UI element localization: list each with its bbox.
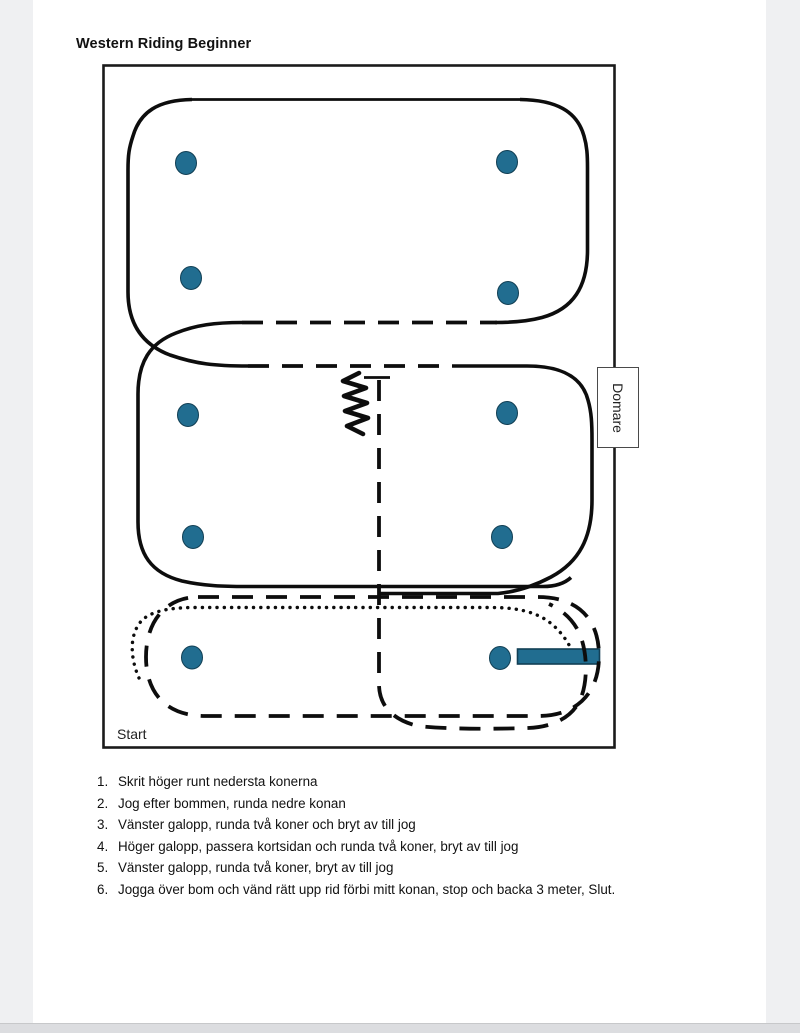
cone-marker (498, 282, 519, 305)
instruction-item: 4. Höger galopp, passera kortsidan och r… (97, 836, 717, 858)
cone-marker (181, 267, 202, 290)
instruction-item: 3. Vänster galopp, runda två koner och b… (97, 814, 717, 836)
instruction-text: Vänster galopp, runda två koner och bryt… (118, 814, 717, 836)
instruction-number: 3. (97, 814, 118, 836)
cone-marker (490, 647, 511, 670)
instructions-list: 1. Skrit höger runt nedersta konerna 2. … (97, 771, 717, 900)
cone-marker (182, 646, 203, 669)
instruction-number: 1. (97, 771, 118, 793)
document-page: { "page": { "title": "Western Riding Beg… (0, 0, 800, 1032)
cone-marker (178, 404, 199, 427)
instruction-text: Jogga över bom och vänd rätt upp rid för… (118, 879, 717, 901)
instruction-text: Höger galopp, passera kortsidan och rund… (118, 836, 717, 858)
instruction-number: 5. (97, 857, 118, 879)
instruction-number: 2. (97, 793, 118, 815)
instruction-text: Skrit höger runt nedersta konerna (118, 771, 717, 793)
judge-label: Domare (610, 383, 626, 433)
jog-path-center-and-right-loop (379, 380, 586, 729)
instruction-item: 5. Vänster galopp, runda två koner, bryt… (97, 857, 717, 879)
cone-marker (497, 151, 518, 174)
cone-marker (176, 152, 197, 175)
instruction-number: 4. (97, 836, 118, 858)
lope-path-topleft-crossover (128, 100, 248, 367)
instruction-text: Jog efter bommen, runda nedre konan (118, 793, 717, 815)
start-label: Start (117, 726, 147, 742)
instruction-number: 6. (97, 879, 118, 901)
lope-path-middle-right (380, 366, 592, 594)
instruction-item: 2. Jog efter bommen, runda nedre konan (97, 793, 717, 815)
instruction-text: Vänster galopp, runda två koner, bryt av… (118, 857, 717, 879)
cone-marker (492, 526, 513, 549)
cone-marker (497, 402, 518, 425)
pole-bom (518, 649, 600, 664)
instruction-item: 6. Jogga över bom och vänd rätt upp rid … (97, 879, 717, 901)
backup-zigzag-symbol (343, 373, 368, 434)
judge-box: Domare (597, 367, 639, 448)
instruction-item: 1. Skrit höger runt nedersta konerna (97, 771, 717, 793)
cone-marker (183, 526, 204, 549)
